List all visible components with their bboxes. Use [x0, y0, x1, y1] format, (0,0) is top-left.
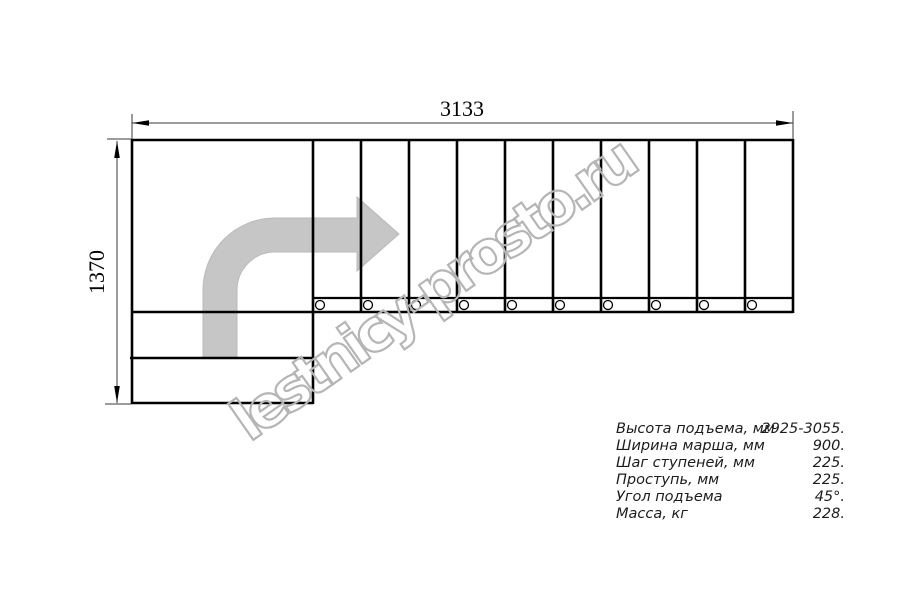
width-dimension: 3133	[132, 96, 793, 139]
spec-label: Ширина марша, мм	[616, 438, 765, 454]
staircase-drawing-page: 3133 1370 lestnicy-prosto.ru Высота подъ…	[0, 0, 900, 600]
baluster-circle	[652, 301, 661, 310]
dimension-arrowhead-bottom	[114, 386, 120, 403]
spec-label: Проступь, мм	[616, 472, 719, 488]
spec-table: Высота подъема, мм 2925-3055. Ширина мар…	[616, 421, 845, 522]
spec-label: Угол подъема	[616, 489, 723, 505]
height-dimension-label: 1370	[84, 250, 109, 294]
watermark-text: lestnicy-prosto.ru	[218, 123, 650, 454]
baluster-circle	[508, 301, 517, 310]
spec-label: Масса, кг	[616, 506, 688, 522]
baluster-circle	[700, 301, 709, 310]
dimension-arrowhead-right	[776, 120, 793, 126]
spec-value: 225.	[813, 472, 845, 488]
spec-label: Шаг ступеней, мм	[616, 455, 755, 471]
spec-value: 225.	[813, 455, 845, 471]
baluster-circle	[604, 301, 613, 310]
spec-value: 228.	[813, 506, 845, 522]
dimension-arrowhead-top	[114, 141, 120, 158]
baluster-circle	[748, 301, 757, 310]
spec-value: 2925-3055.	[761, 421, 845, 437]
spec-value: 45°.	[815, 489, 845, 505]
dimension-arrowhead-left	[132, 120, 149, 126]
spec-label: Высота подъема, мм	[616, 421, 775, 437]
staircase-drawing: 3133 1370 lestnicy-prosto.ru Высота подъ…	[0, 0, 900, 600]
baluster-circle	[556, 301, 565, 310]
baluster-circle	[316, 301, 325, 310]
width-dimension-label: 3133	[440, 96, 484, 121]
height-dimension: 1370	[84, 139, 131, 404]
spec-value: 900.	[813, 438, 845, 454]
